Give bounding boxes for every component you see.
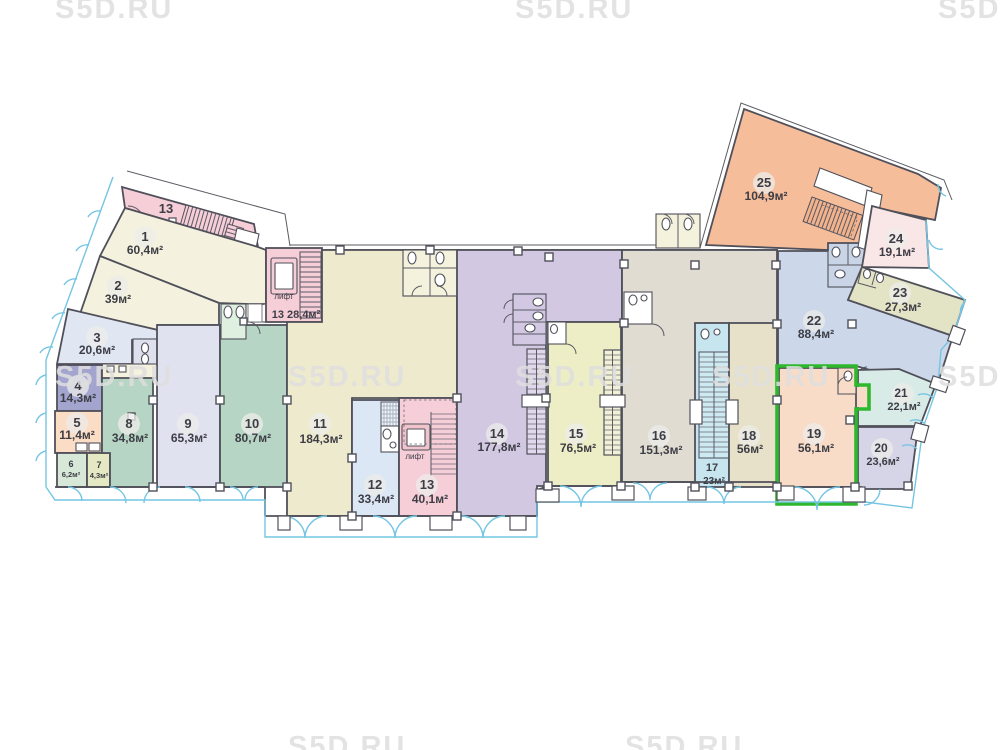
svg-text:S5D.RU: S5D.RU — [938, 361, 1000, 393]
svg-text:S5D.RU: S5D.RU — [288, 361, 406, 393]
svg-text:6: 6 — [68, 459, 73, 469]
svg-text:56,1м²: 56,1м² — [798, 441, 834, 455]
svg-text:15: 15 — [569, 426, 583, 441]
svg-text:лифт: лифт — [274, 292, 294, 301]
svg-text:1: 1 — [141, 229, 148, 244]
svg-text:80,7м²: 80,7м² — [235, 431, 271, 445]
svg-text:6,2м²: 6,2м² — [62, 470, 81, 479]
svg-text:14,3м²: 14,3м² — [60, 391, 96, 405]
svg-text:33,4м²: 33,4м² — [358, 492, 394, 506]
svg-text:60,4м²: 60,4м² — [127, 243, 163, 257]
svg-text:S5D.RU: S5D.RU — [712, 361, 830, 393]
svg-text:18: 18 — [742, 428, 756, 443]
svg-text:19: 19 — [807, 426, 821, 441]
svg-text:S5D.RU: S5D.RU — [515, 361, 633, 393]
svg-text:177,8м²: 177,8м² — [478, 440, 521, 454]
svg-text:24: 24 — [889, 231, 904, 246]
svg-text:S5D.RU: S5D.RU — [55, 0, 173, 25]
svg-text:11,4м²: 11,4м² — [59, 428, 95, 442]
svg-text:56м²: 56м² — [737, 442, 763, 456]
svg-text:34,8м²: 34,8м² — [112, 431, 148, 445]
svg-text:20: 20 — [874, 441, 888, 455]
svg-text:13 28,4м²: 13 28,4м² — [272, 309, 321, 321]
svg-text:S5D.RU: S5D.RU — [515, 0, 633, 25]
svg-text:27,3м²: 27,3м² — [885, 300, 921, 314]
svg-text:13: 13 — [420, 477, 434, 492]
svg-text:151,3м²: 151,3м² — [640, 443, 683, 457]
svg-text:S5D.RU: S5D.RU — [938, 0, 1000, 25]
svg-text:лифт: лифт — [405, 452, 425, 461]
svg-text:184,3м²: 184,3м² — [300, 432, 343, 446]
svg-text:16: 16 — [652, 428, 666, 443]
svg-text:S5D.RU: S5D.RU — [288, 731, 406, 750]
svg-text:14: 14 — [490, 426, 505, 441]
svg-text:11: 11 — [313, 416, 327, 431]
svg-text:13: 13 — [159, 201, 173, 216]
svg-text:9: 9 — [184, 416, 191, 431]
svg-text:2: 2 — [114, 278, 121, 293]
svg-text:40,1м²: 40,1м² — [412, 492, 448, 506]
svg-text:19,1м²: 19,1м² — [879, 245, 915, 259]
svg-text:8: 8 — [125, 416, 132, 431]
svg-text:65,3м²: 65,3м² — [171, 431, 207, 445]
svg-text:23,6м²: 23,6м² — [866, 456, 900, 468]
svg-text:25: 25 — [757, 175, 771, 190]
svg-text:17: 17 — [706, 462, 718, 474]
svg-text:22,1м²: 22,1м² — [887, 401, 921, 413]
svg-text:39м²: 39м² — [105, 292, 131, 306]
svg-text:104,9м²: 104,9м² — [745, 189, 788, 203]
svg-text:22: 22 — [807, 313, 821, 328]
svg-text:S5D.RU: S5D.RU — [55, 361, 173, 393]
svg-text:4,3м²: 4,3м² — [90, 471, 109, 480]
svg-text:12: 12 — [368, 477, 382, 492]
svg-text:23: 23 — [893, 285, 907, 300]
svg-text:88,4м²: 88,4м² — [798, 327, 834, 341]
svg-text:7: 7 — [96, 460, 101, 470]
svg-text:S5D.RU: S5D.RU — [625, 731, 743, 750]
svg-text:23м²: 23м² — [703, 476, 726, 487]
svg-text:20,6м²: 20,6м² — [79, 343, 115, 357]
svg-text:76,5м²: 76,5м² — [560, 441, 596, 455]
svg-text:10: 10 — [245, 416, 259, 431]
svg-text:21: 21 — [894, 386, 908, 400]
